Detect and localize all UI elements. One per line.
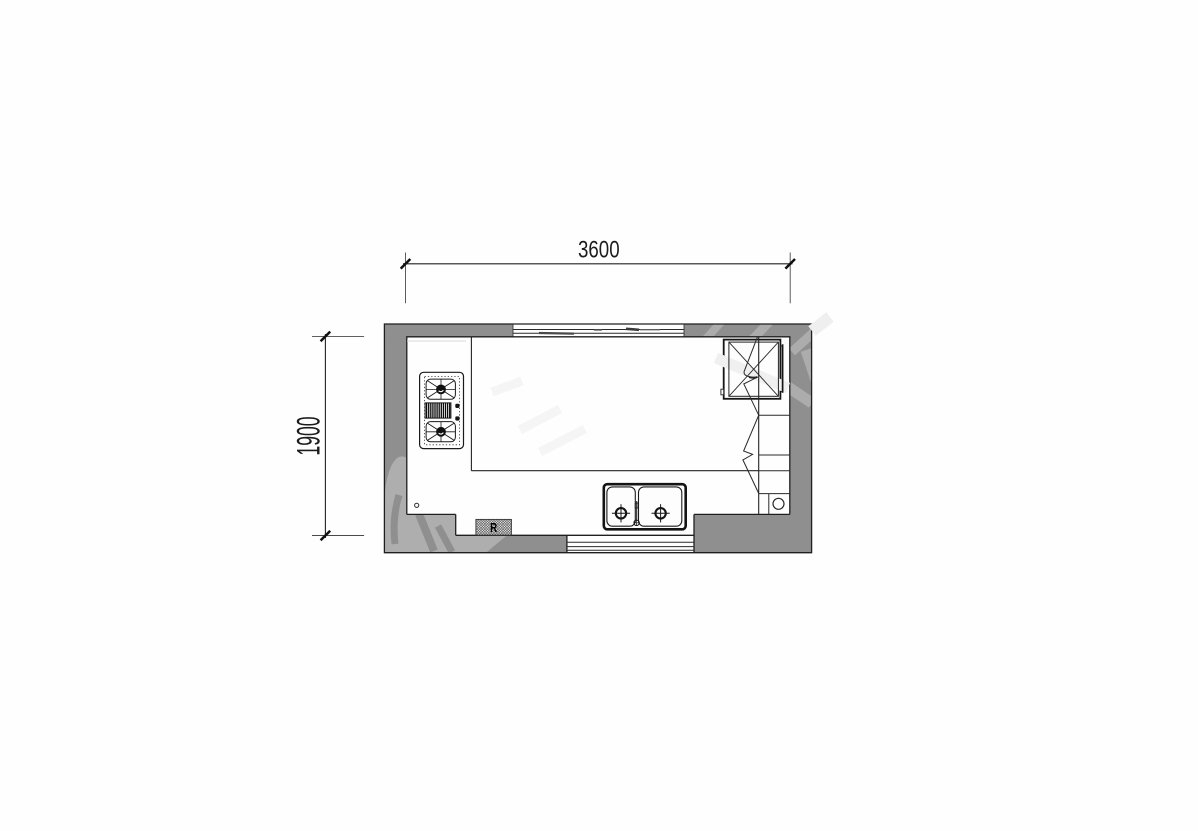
- svg-text:3600: 3600: [578, 235, 620, 263]
- svg-text:1900: 1900: [290, 416, 327, 455]
- svg-text:R: R: [490, 522, 497, 535]
